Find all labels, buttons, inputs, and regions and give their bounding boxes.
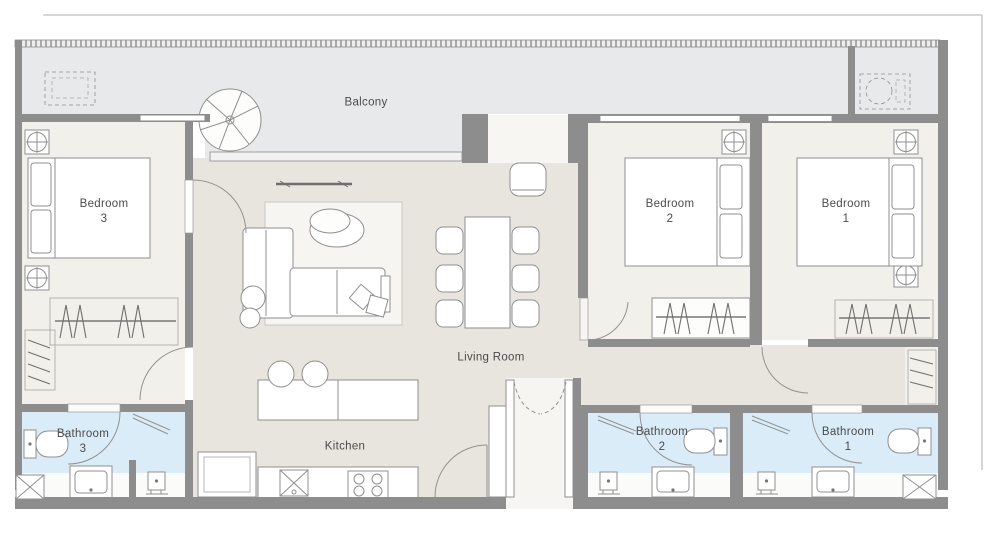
balcony-label: Balcony <box>344 96 387 111</box>
dining-table <box>465 217 510 328</box>
dining-chair <box>436 300 463 327</box>
balcony-floor <box>15 46 940 114</box>
bedroom1-dressing-floor <box>905 347 938 405</box>
window <box>600 116 740 122</box>
dining-chair <box>512 265 539 292</box>
dining-chair <box>436 265 463 292</box>
floor-plan: Balcony Bedroom3 Bedroom2 Bedroom1 Livin… <box>0 0 1000 543</box>
kitchen-counter <box>258 467 418 500</box>
fridge <box>198 452 256 497</box>
entrance-bay-floor <box>506 378 573 509</box>
pillow <box>892 214 914 258</box>
floor-plan-drawing <box>0 0 1000 543</box>
pillow <box>892 165 914 209</box>
ceiling-diffuser-icon <box>25 266 49 290</box>
wardrobe-hangers <box>652 298 750 338</box>
ceiling-diffuser-icon <box>894 130 918 154</box>
window <box>768 116 832 122</box>
balcony-railing <box>15 40 940 47</box>
door-threshold <box>68 404 120 412</box>
corridor-floor <box>588 345 938 405</box>
dining-chair <box>436 227 463 254</box>
living-room-label: Living Room <box>457 351 524 366</box>
dining-alcove-floor <box>488 115 568 163</box>
service-shaft-icon <box>16 475 44 499</box>
bar-stool <box>268 361 294 387</box>
pillow <box>720 165 742 209</box>
pouf <box>240 308 260 328</box>
bedroom2-label: Bedroom2 <box>646 197 695 227</box>
door-threshold <box>812 405 862 413</box>
bathroom3-label: Bathroom3 <box>57 427 109 457</box>
window <box>140 115 205 121</box>
pillow <box>720 214 742 258</box>
ceiling-diffuser-icon <box>722 130 746 154</box>
service-shaft-icon <box>903 475 936 499</box>
balcony-sliding-door <box>210 150 462 163</box>
bedroom3-label: Bedroom3 <box>80 197 129 227</box>
pillow <box>31 210 51 253</box>
cushion <box>366 295 388 317</box>
dining-chair <box>512 300 539 327</box>
door-threshold <box>580 298 588 340</box>
ceiling-diffuser-icon <box>25 130 49 154</box>
dining-chair <box>512 227 539 254</box>
pillow <box>31 163 51 206</box>
bathroom1-label: Bathroom1 <box>822 425 874 455</box>
kitchen-label: Kitchen <box>325 440 365 455</box>
ceiling-diffuser-icon <box>894 263 918 287</box>
bar-stool <box>302 361 328 387</box>
door-threshold <box>640 405 692 413</box>
dining-chair <box>510 163 546 196</box>
pouf <box>241 286 265 310</box>
bathroom2-label: Bathroom2 <box>636 425 688 455</box>
bedroom1-label: Bedroom1 <box>822 197 871 227</box>
door-threshold <box>185 180 193 233</box>
